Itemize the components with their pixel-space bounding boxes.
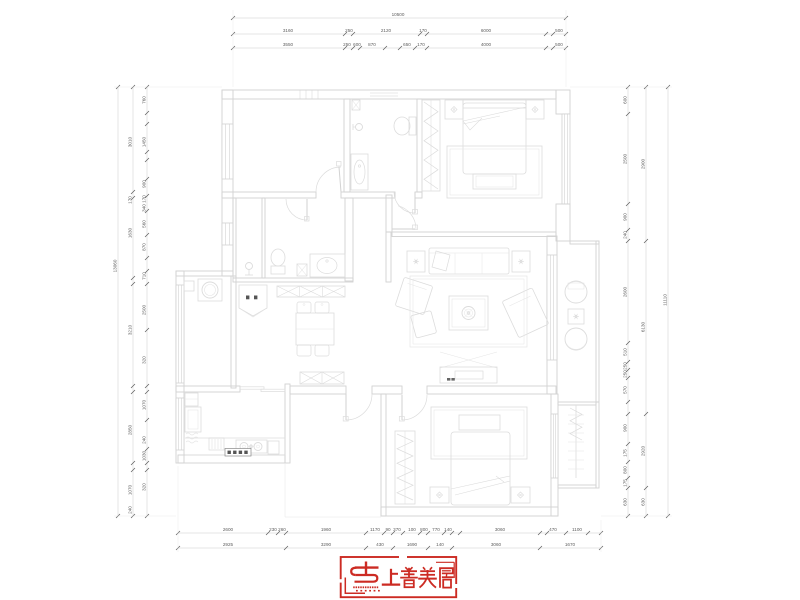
svg-text:760: 760 bbox=[142, 96, 147, 104]
svg-text:3010: 3010 bbox=[128, 136, 133, 147]
svg-text:90: 90 bbox=[385, 527, 391, 532]
svg-text:2500: 2500 bbox=[623, 153, 628, 164]
svg-text:250: 250 bbox=[623, 362, 628, 370]
svg-text:6000: 6000 bbox=[481, 28, 492, 33]
svg-text:510: 510 bbox=[623, 348, 628, 356]
svg-text:140: 140 bbox=[436, 542, 444, 547]
svg-text:11110: 11110 bbox=[663, 294, 668, 306]
svg-text:2500: 2500 bbox=[142, 304, 147, 315]
svg-text:250: 250 bbox=[343, 42, 351, 47]
svg-text:800: 800 bbox=[623, 466, 628, 474]
svg-text:340: 340 bbox=[142, 204, 147, 212]
svg-text:3290: 3290 bbox=[321, 542, 332, 547]
svg-text:630: 630 bbox=[623, 498, 628, 506]
svg-text:3060: 3060 bbox=[491, 542, 502, 547]
svg-text:770: 770 bbox=[432, 527, 440, 532]
svg-text:175: 175 bbox=[623, 449, 628, 457]
svg-text:13060: 13060 bbox=[113, 259, 118, 272]
svg-text:2600: 2600 bbox=[223, 527, 234, 532]
svg-text:170: 170 bbox=[142, 195, 147, 203]
svg-text:3160: 3160 bbox=[283, 28, 294, 33]
svg-text:2920: 2920 bbox=[641, 445, 646, 456]
svg-text:900: 900 bbox=[623, 424, 628, 432]
svg-text:3210: 3210 bbox=[128, 324, 133, 335]
svg-text:500: 500 bbox=[555, 28, 563, 33]
svg-text:2925: 2925 bbox=[223, 542, 234, 547]
svg-text:1070: 1070 bbox=[128, 484, 133, 495]
svg-text:1030: 1030 bbox=[142, 450, 147, 461]
svg-text:900: 900 bbox=[623, 213, 628, 221]
svg-text:900: 900 bbox=[142, 180, 147, 188]
svg-text:175: 175 bbox=[623, 479, 628, 487]
svg-text:2600: 2600 bbox=[623, 286, 628, 297]
svg-text:170: 170 bbox=[128, 196, 133, 204]
svg-text:10500: 10500 bbox=[392, 12, 405, 17]
svg-text:800: 800 bbox=[420, 527, 428, 532]
svg-text:2850: 2850 bbox=[128, 424, 133, 435]
svg-text:1100: 1100 bbox=[572, 527, 582, 532]
svg-text:260: 260 bbox=[278, 527, 286, 532]
svg-text:560: 560 bbox=[142, 220, 147, 228]
svg-text:170: 170 bbox=[417, 42, 425, 47]
svg-text:600: 600 bbox=[623, 96, 628, 104]
svg-text:870: 870 bbox=[142, 243, 147, 251]
svg-text:630: 630 bbox=[641, 498, 646, 506]
svg-text:710: 710 bbox=[142, 272, 147, 280]
svg-text:870: 870 bbox=[368, 42, 376, 47]
svg-text:600: 600 bbox=[353, 42, 361, 47]
svg-text:320: 320 bbox=[142, 483, 147, 491]
svg-text:240: 240 bbox=[142, 436, 147, 444]
svg-text:650: 650 bbox=[403, 42, 411, 47]
svg-text:2900: 2900 bbox=[641, 158, 646, 169]
svg-text:470: 470 bbox=[549, 527, 557, 532]
svg-text:100: 100 bbox=[408, 527, 416, 532]
svg-text:1170: 1170 bbox=[370, 527, 380, 532]
svg-text:1630: 1630 bbox=[128, 227, 133, 238]
svg-text:1070: 1070 bbox=[142, 399, 147, 410]
svg-text:240: 240 bbox=[623, 231, 628, 239]
svg-text:1450: 1450 bbox=[142, 136, 147, 147]
svg-text:1960: 1960 bbox=[321, 527, 332, 532]
svg-text:320: 320 bbox=[142, 356, 147, 364]
svg-text:230: 230 bbox=[269, 527, 277, 532]
svg-text:570: 570 bbox=[623, 386, 628, 394]
svg-text:6130: 6130 bbox=[641, 321, 646, 332]
svg-text:3060: 3060 bbox=[495, 527, 506, 532]
svg-text:250: 250 bbox=[345, 28, 353, 33]
svg-text:1670: 1670 bbox=[565, 542, 576, 547]
svg-text:140: 140 bbox=[444, 527, 452, 532]
svg-text:500: 500 bbox=[555, 42, 563, 47]
svg-text:370: 370 bbox=[393, 527, 401, 532]
svg-text:250: 250 bbox=[623, 370, 628, 378]
svg-text:170: 170 bbox=[419, 28, 427, 33]
svg-text:240: 240 bbox=[128, 506, 133, 514]
svg-text:2120: 2120 bbox=[381, 28, 392, 33]
svg-text:1690: 1690 bbox=[407, 542, 418, 547]
svg-text:3550: 3550 bbox=[283, 42, 294, 47]
svg-text:430: 430 bbox=[376, 542, 384, 547]
svg-text:4000: 4000 bbox=[481, 42, 492, 47]
